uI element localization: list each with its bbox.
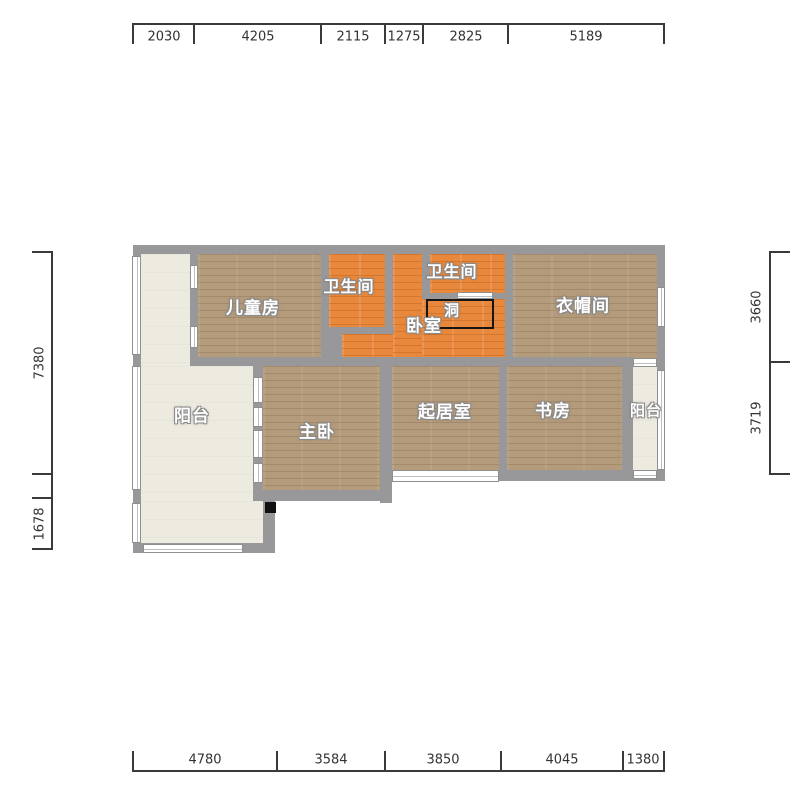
dim-tick: [32, 473, 53, 475]
window-cloakroom-right: [657, 287, 665, 327]
dim-tick: [769, 251, 790, 253]
dim-tick: [32, 497, 53, 499]
room-label-bedroom: 卧室: [406, 312, 442, 337]
window-balcony-left-1: [132, 256, 141, 355]
floor-bedroom-strip: [393, 254, 422, 358]
dim-top-1: 4205: [241, 30, 274, 45]
wall-exterior-top: [133, 245, 665, 254]
dimension-line-top: [133, 23, 664, 25]
window-master-left-2: [253, 407, 263, 427]
room-label-cloakroom: 衣帽间: [556, 292, 610, 317]
wall-master-living: [380, 357, 392, 503]
dim-top-2: 2115: [336, 30, 369, 45]
floor-balcony-left-mid: [141, 366, 253, 501]
window-master-left-4: [253, 463, 263, 483]
dim-tick: [663, 751, 665, 772]
window-balcony-left-2: [132, 366, 141, 490]
dimension-line-bottom: [133, 770, 664, 772]
floor-balcony-left-upper: [141, 254, 190, 366]
floor-balcony-left-lower: [141, 501, 263, 543]
dim-right-0: 3660: [750, 290, 765, 323]
dimension-line-right: [769, 252, 771, 474]
dim-tick: [32, 251, 53, 253]
dim-bottom-1: 3584: [314, 753, 347, 768]
dim-tick: [132, 23, 134, 44]
dimension-line-left: [51, 252, 53, 550]
wall-mid-horizontal: [190, 357, 633, 366]
room-label-study: 书房: [535, 397, 571, 422]
window-balcony-bottom: [143, 544, 243, 553]
dim-tick: [32, 548, 53, 550]
room-label-balcony-right: 阳台: [630, 400, 662, 421]
opening-above-hole: [457, 292, 493, 299]
dim-tick: [276, 751, 278, 772]
room-label-master: 主卧: [299, 418, 335, 443]
dim-tick: [500, 751, 502, 772]
dim-top-3: 1275: [387, 30, 420, 45]
dim-top-5: 5189: [569, 30, 602, 45]
dim-left-0: 7380: [33, 346, 48, 379]
dim-top-0: 2030: [147, 30, 180, 45]
wall-bath1-bottom: [321, 327, 394, 334]
dim-tick: [193, 23, 195, 44]
dim-bottom-2: 3850: [426, 753, 459, 768]
window-master-left-1: [253, 377, 263, 403]
window-children-left-1: [190, 265, 198, 289]
dim-top-4: 2825: [449, 30, 482, 45]
room-label-children: 儿童房: [226, 294, 280, 319]
dim-tick: [384, 23, 386, 44]
room-label-bath2: 卫生间: [426, 258, 477, 282]
window-children-left-2: [190, 326, 198, 348]
room-label-bath1: 卫生间: [323, 273, 374, 297]
dim-bottom-4: 1380: [626, 753, 659, 768]
column-marker: [265, 502, 276, 513]
dim-right-1: 3719: [750, 401, 765, 434]
dim-bottom-3: 4045: [545, 753, 578, 768]
room-label-hole: 洞: [444, 300, 460, 321]
dim-tick: [422, 23, 424, 44]
dim-tick: [132, 751, 134, 772]
window-balcony-left-3: [132, 503, 141, 543]
dim-tick: [622, 751, 624, 772]
dim-tick: [663, 23, 665, 44]
dim-tick: [507, 23, 509, 44]
floor-bedroom-left: [342, 334, 393, 358]
floor-plan-canvas: 儿童房 卫生间 卫生间 卧室 洞 衣帽间 阳台 主卧 起居室 书房 阳台 203…: [0, 0, 800, 800]
dim-tick: [769, 473, 790, 475]
wall-living-study: [499, 357, 507, 481]
room-label-living: 起居室: [418, 398, 472, 423]
dim-tick: [769, 361, 790, 363]
window-master-left-3: [253, 430, 263, 458]
wall-master-bottom: [253, 490, 392, 501]
dim-tick: [320, 23, 322, 44]
wall-bath1-right: [385, 254, 393, 334]
window-balcony-right-bottom: [633, 470, 657, 479]
dim-tick: [384, 751, 386, 772]
window-living-bottom: [392, 470, 499, 482]
room-label-balcony-left: 阳台: [174, 402, 210, 427]
wall-bath2-cloakroom: [505, 245, 513, 366]
dim-left-1: 1678: [33, 507, 48, 540]
dim-bottom-0: 4780: [188, 753, 221, 768]
window-balcony-right-top: [633, 358, 657, 367]
